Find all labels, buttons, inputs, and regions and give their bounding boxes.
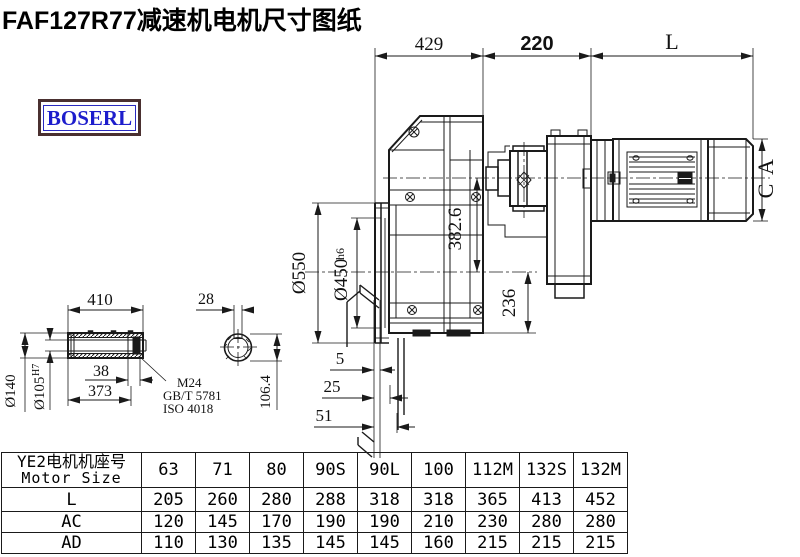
col-90s: 90S bbox=[304, 453, 358, 488]
dimension-lines bbox=[25, 56, 762, 427]
dim-5: 5 bbox=[336, 349, 345, 368]
table-row-L: L 205 260 280 288 318 318 365 413 452 bbox=[2, 488, 628, 512]
table-cell: 190 bbox=[358, 512, 412, 533]
row-label-AC: AC bbox=[2, 512, 142, 533]
note-iso: ISO 4018 bbox=[163, 401, 213, 416]
table-cell: 215 bbox=[520, 533, 574, 554]
table-cell: 280 bbox=[250, 488, 304, 512]
table-cell: 160 bbox=[412, 533, 466, 554]
gearbox-housing-details bbox=[389, 116, 483, 336]
table-header-motor-size: YE2电机机座号 Motor Size bbox=[2, 453, 142, 488]
col-132m: 132M bbox=[574, 453, 628, 488]
table-cell: 215 bbox=[574, 533, 628, 554]
table-cell: 135 bbox=[250, 533, 304, 554]
dim-AC-a: A bbox=[753, 159, 778, 175]
drawing-page: FAF127R77减速机电机尺寸图纸 BOSERL bbox=[0, 0, 800, 557]
dimension-texts: 429 220 L A C 382.6 236 Ø550 Ø450 h6 5 2… bbox=[3, 29, 778, 425]
dim-373: 373 bbox=[88, 383, 112, 400]
dim-51: 51 bbox=[316, 406, 333, 425]
input-coupling bbox=[486, 146, 547, 237]
dim-105: Ø105 bbox=[32, 377, 48, 410]
dim-28: 28 bbox=[198, 291, 214, 308]
table-cell: 110 bbox=[142, 533, 196, 554]
dim-140: Ø140 bbox=[3, 374, 19, 407]
col-71: 71 bbox=[196, 453, 250, 488]
table-cell: 230 bbox=[466, 512, 520, 533]
dim-220: 220 bbox=[520, 33, 553, 55]
table-cell: 210 bbox=[412, 512, 466, 533]
bell-adapter bbox=[547, 130, 591, 298]
table-header-cn: YE2电机机座号 bbox=[2, 453, 141, 470]
dim-550: Ø550 bbox=[289, 252, 310, 294]
table-cell: 215 bbox=[466, 533, 520, 554]
table-header-en: Motor Size bbox=[2, 470, 141, 487]
table-cell: 190 bbox=[304, 512, 358, 533]
table-cell: 145 bbox=[358, 533, 412, 554]
output-flange bbox=[375, 203, 389, 343]
table-cell: 288 bbox=[304, 488, 358, 512]
row-label-AD: AD bbox=[2, 533, 142, 554]
col-132s: 132S bbox=[520, 453, 574, 488]
dim-410: 410 bbox=[87, 290, 113, 309]
dim-25: 25 bbox=[324, 377, 341, 396]
table-cell: 365 bbox=[466, 488, 520, 512]
table-cell: 260 bbox=[196, 488, 250, 512]
table-cell: 280 bbox=[520, 512, 574, 533]
col-80: 80 bbox=[250, 453, 304, 488]
dim-38: 38 bbox=[93, 363, 109, 380]
dim-450-tol: h6 bbox=[333, 248, 347, 260]
dim-429: 429 bbox=[415, 34, 444, 55]
dimension-table: YE2电机机座号 Motor Size 63 71 80 90S 90L 100… bbox=[1, 452, 628, 554]
table-cell: 318 bbox=[412, 488, 466, 512]
gearbox-housing bbox=[389, 116, 483, 333]
dim-AC-c: C bbox=[753, 184, 778, 199]
col-100: 100 bbox=[412, 453, 466, 488]
extension-lines bbox=[20, 48, 768, 458]
dim-L: L bbox=[665, 29, 678, 54]
col-112m: 112M bbox=[466, 453, 520, 488]
table-row-AD: AD 110 130 135 145 145 160 215 215 215 bbox=[2, 533, 628, 554]
table-row-AC: AC 120 145 170 190 190 210 230 280 280 bbox=[2, 512, 628, 533]
table-cell: 413 bbox=[520, 488, 574, 512]
motor-details bbox=[608, 156, 693, 203]
dim-382: 382.6 bbox=[445, 208, 466, 251]
dim-236: 236 bbox=[499, 289, 520, 318]
dim-450: Ø450 bbox=[331, 259, 352, 301]
table-cell: 452 bbox=[574, 488, 628, 512]
table-cell: 130 bbox=[196, 533, 250, 554]
table-cell: 205 bbox=[142, 488, 196, 512]
table-cell: 170 bbox=[250, 512, 304, 533]
dim-105-tol: H7 bbox=[31, 364, 42, 376]
col-90l: 90L bbox=[358, 453, 412, 488]
table-cell: 120 bbox=[142, 512, 196, 533]
table-cell: 145 bbox=[304, 533, 358, 554]
table-cell: 318 bbox=[358, 488, 412, 512]
table-cell: 280 bbox=[574, 512, 628, 533]
table-cell: 145 bbox=[196, 512, 250, 533]
col-63: 63 bbox=[142, 453, 196, 488]
hollow-shaft-detail bbox=[68, 331, 146, 359]
row-label-L: L bbox=[2, 488, 142, 512]
dim-106: 106.4 bbox=[258, 375, 274, 409]
